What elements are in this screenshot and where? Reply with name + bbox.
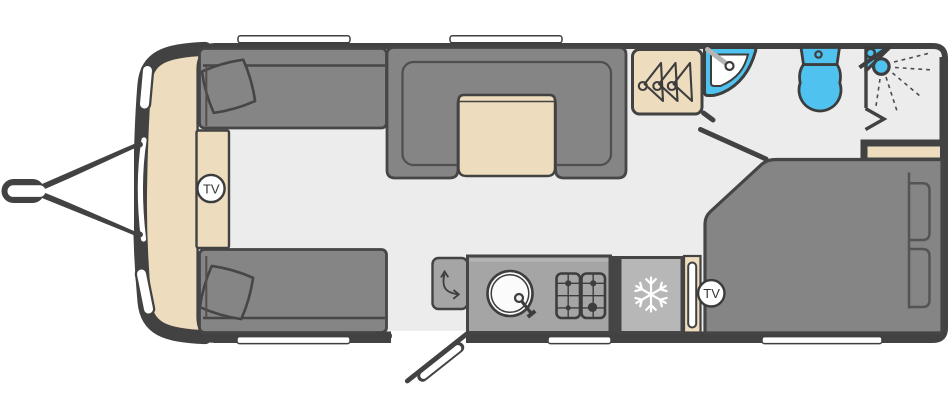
svg-text:TV: TV: [203, 181, 220, 196]
svg-text:TV: TV: [703, 286, 720, 301]
